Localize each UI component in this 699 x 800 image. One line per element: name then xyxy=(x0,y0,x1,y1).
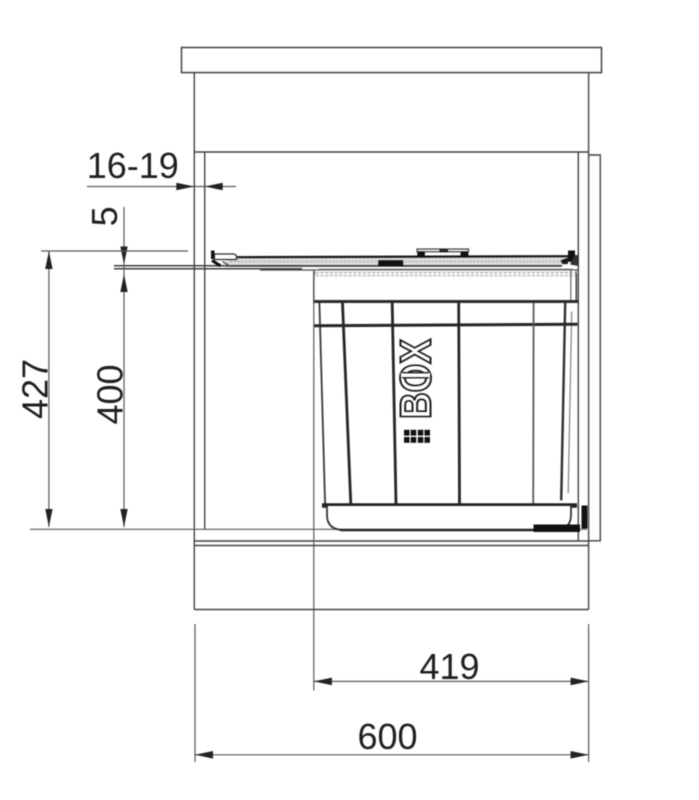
svg-text:16-19: 16-19 xyxy=(87,145,179,186)
svg-text:400: 400 xyxy=(90,364,131,424)
svg-text:BOX: BOX xyxy=(392,339,441,419)
svg-text:600: 600 xyxy=(357,716,417,757)
svg-text:5: 5 xyxy=(84,206,125,226)
